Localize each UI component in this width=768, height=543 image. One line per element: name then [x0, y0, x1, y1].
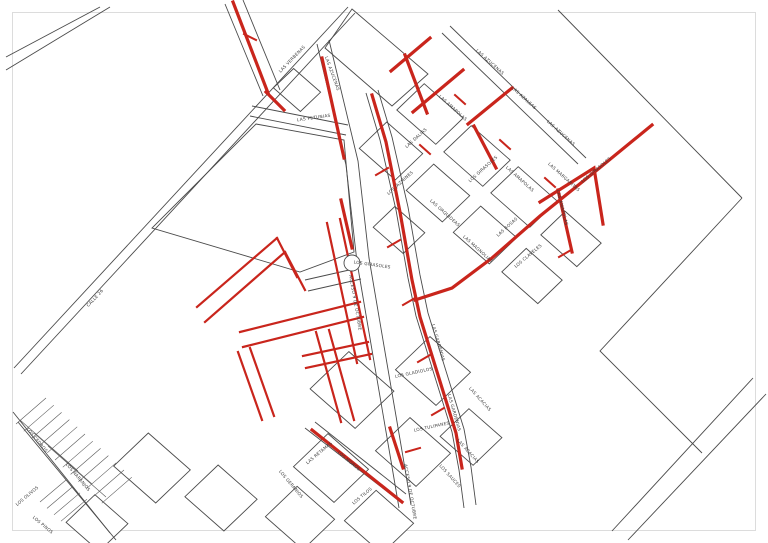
map-viewport: LAS VERBENASLAS AZUCENASLAS AZUCENASLAS …: [0, 0, 768, 543]
street-map-canvas: LAS VERBENASLAS AZUCENASLAS AZUCENASLAS …: [0, 0, 768, 543]
